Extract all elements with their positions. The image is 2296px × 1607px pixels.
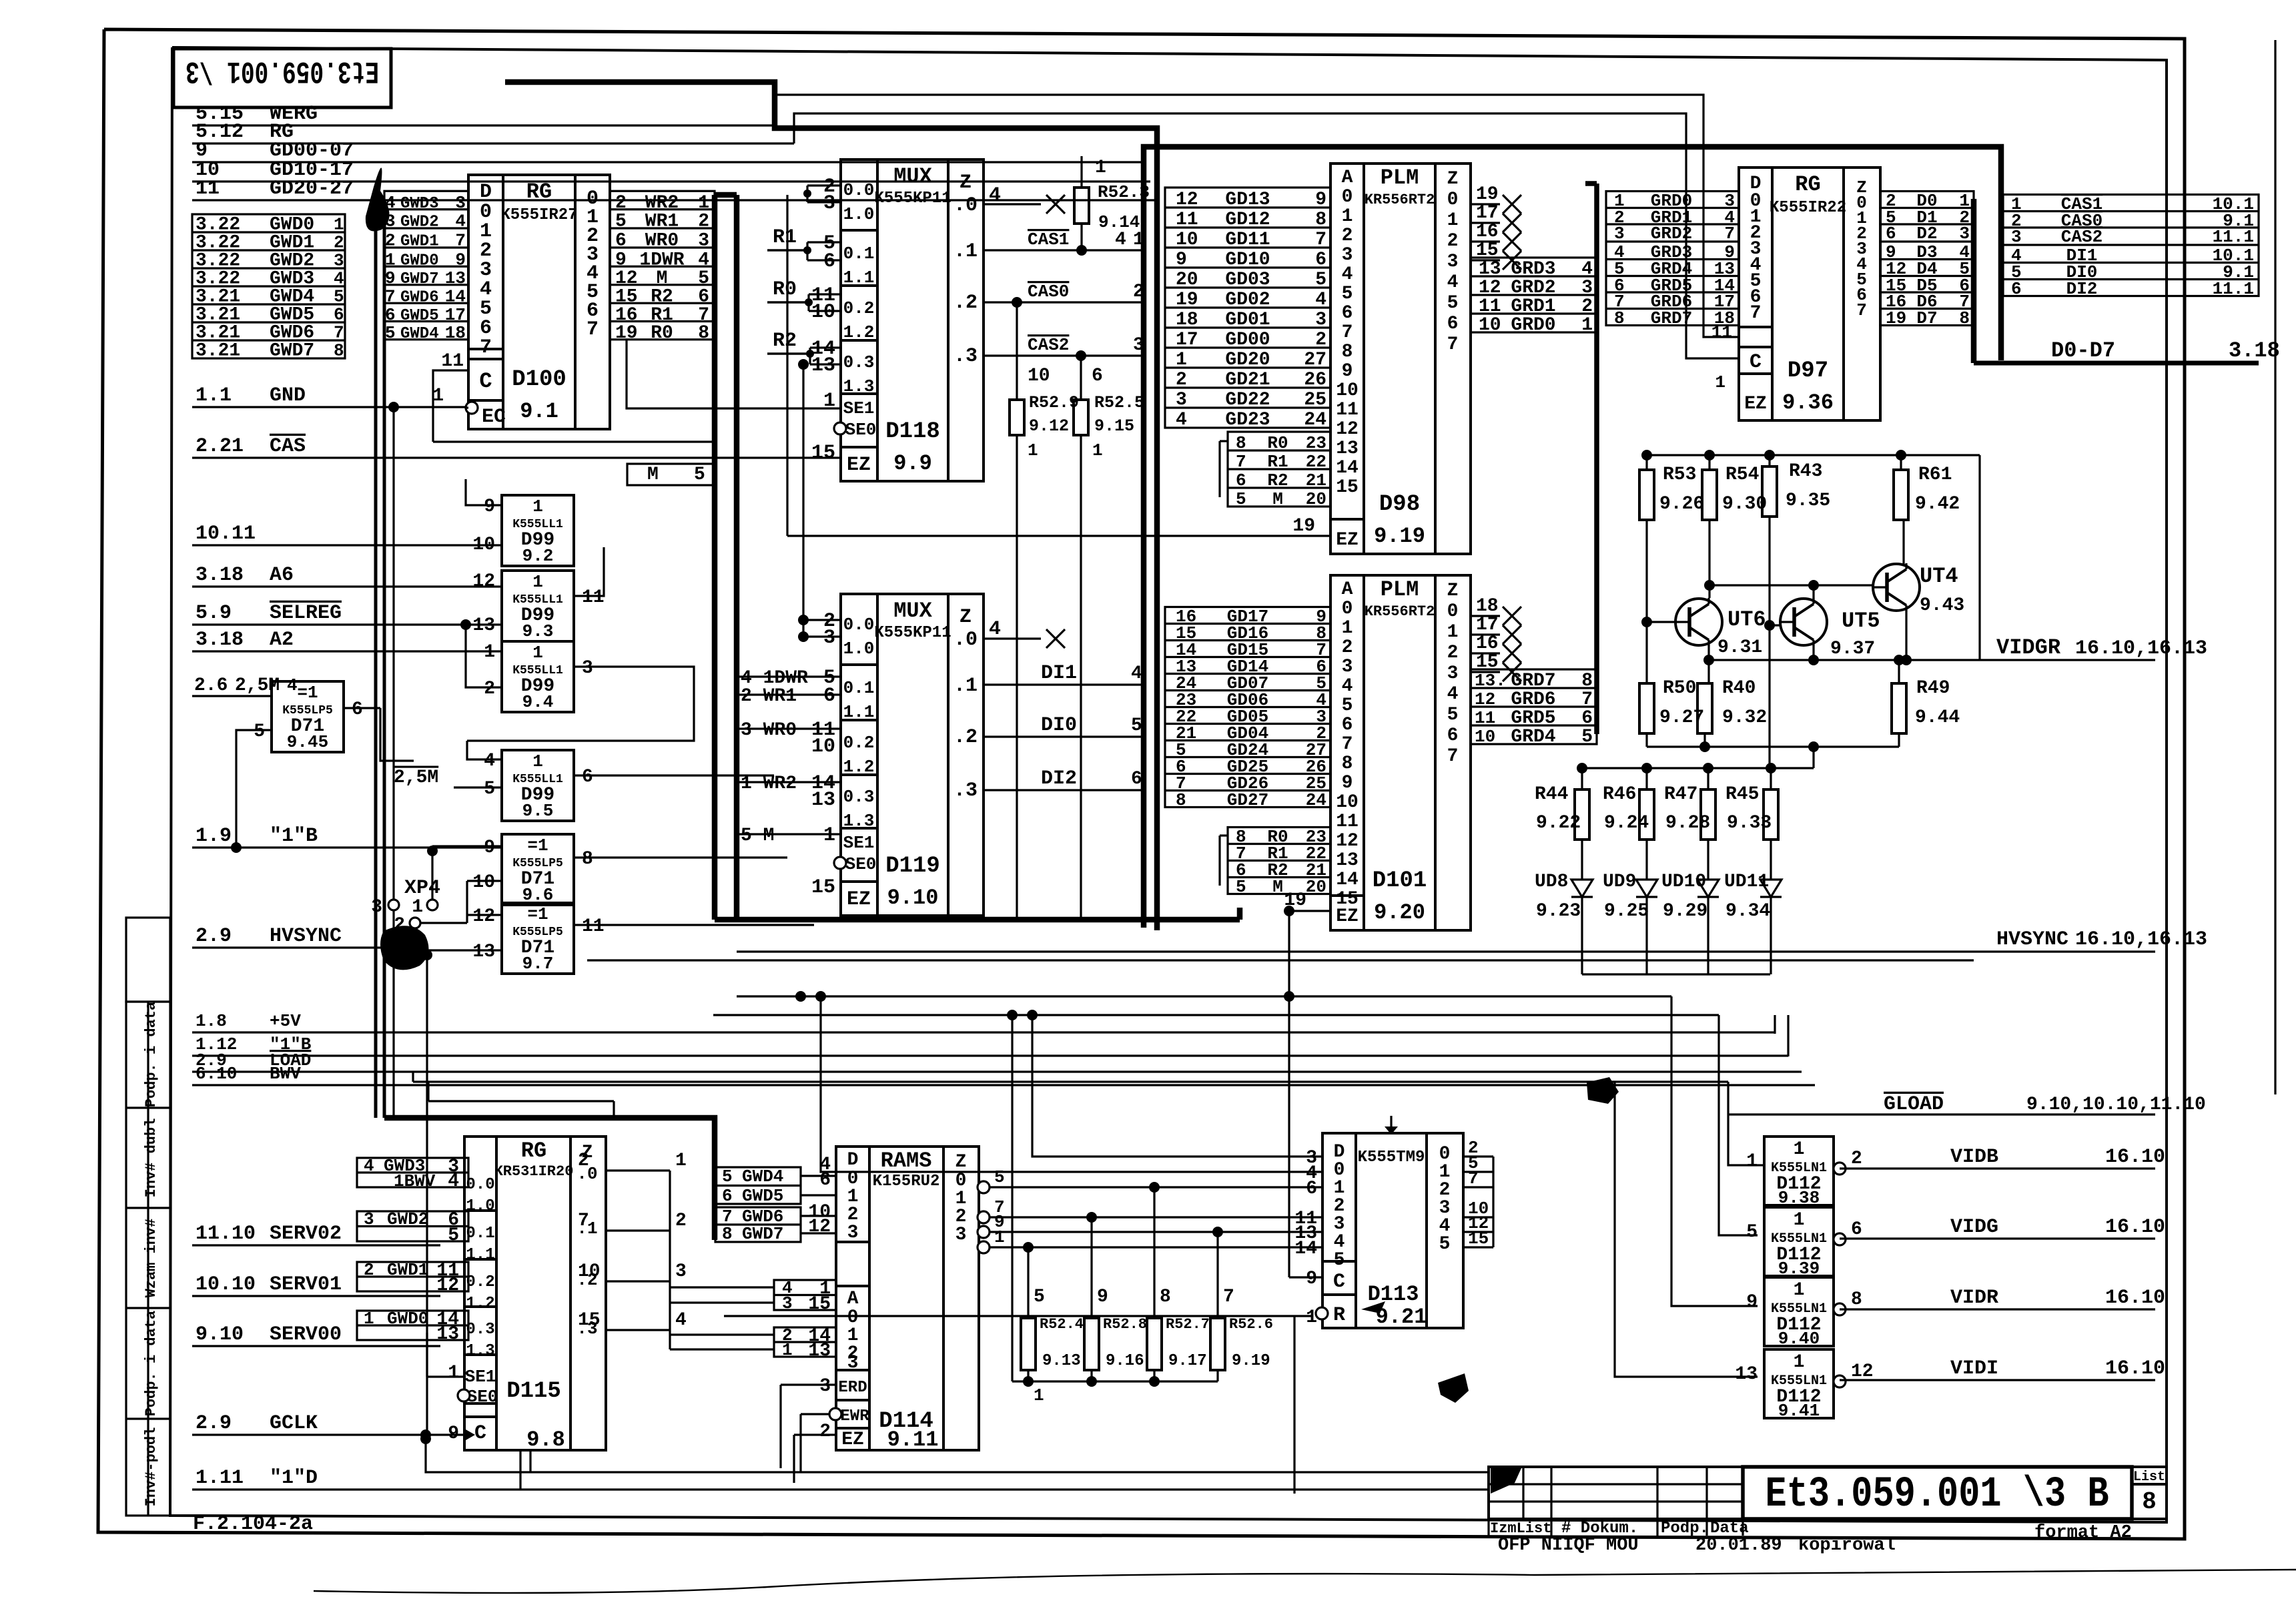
svg-text:5: 5: [1439, 1234, 1451, 1255]
svg-text:UT4: UT4: [1920, 564, 1958, 589]
svg-text:K555LP5: K555LP5: [282, 704, 333, 717]
svg-text:PLM: PLM: [1381, 166, 1419, 190]
svg-text:2: 2: [1851, 1149, 1862, 1169]
svg-text:GLOAD: GLOAD: [1884, 1093, 1944, 1116]
svg-text:GD22: GD22: [1225, 390, 1270, 410]
svg-text:8: 8: [1342, 753, 1353, 774]
svg-text:13.: 13.: [1475, 671, 1506, 691]
svg-text:10: 10: [1336, 792, 1359, 813]
svg-text:8: 8: [722, 1224, 733, 1244]
svg-text:D0-D7: D0-D7: [2051, 338, 2115, 363]
svg-text:EZ: EZ: [1336, 530, 1359, 551]
svg-text:UT5: UT5: [1842, 609, 1880, 633]
svg-text:9.24: 9.24: [1604, 813, 1649, 834]
svg-text:7: 7: [1468, 1169, 1479, 1189]
svg-text:.2: .2: [953, 292, 978, 314]
svg-text:R52.8: R52.8: [1103, 1316, 1147, 1333]
svg-text:3: 3: [582, 658, 593, 679]
svg-text:7: 7: [1447, 746, 1459, 767]
svg-text:6: 6: [823, 250, 835, 273]
svg-text:GRD4: GRD4: [1511, 727, 1555, 747]
svg-text:17: 17: [445, 305, 466, 325]
svg-text:9.35: 9.35: [1786, 491, 1830, 511]
svg-text:3.18: 3.18: [2229, 338, 2280, 363]
svg-text:12: 12: [1176, 190, 1198, 210]
svg-text:kopirowal: kopirowal: [1798, 1536, 1896, 1556]
svg-text:5: 5: [385, 323, 396, 343]
svg-text:R52.6: R52.6: [1229, 1316, 1273, 1333]
svg-text:3: 3: [1959, 224, 1970, 244]
svg-text:8: 8: [582, 849, 593, 870]
svg-text:R45: R45: [1726, 784, 1759, 805]
svg-text:1: 1: [698, 193, 709, 214]
svg-text:12: 12: [1851, 1361, 1874, 1382]
svg-text:Podp. i data: Podp. i data: [143, 1311, 159, 1416]
svg-text:WR1: WR1: [645, 212, 679, 232]
svg-text:9.12: 9.12: [1029, 416, 1069, 436]
svg-text:11: 11: [1336, 400, 1359, 420]
svg-text:RG: RG: [1795, 172, 1820, 197]
svg-text:3: 3: [371, 897, 382, 918]
svg-text:2: 2: [1176, 370, 1187, 390]
svg-text:9.31: 9.31: [1717, 637, 1762, 658]
svg-text:16.10: 16.10: [2105, 1146, 2165, 1169]
svg-text:GD01: GD01: [1225, 310, 1270, 330]
svg-text:6: 6: [1447, 725, 1459, 746]
svg-text:GWD4: GWD4: [400, 325, 439, 343]
svg-text:GND: GND: [270, 384, 306, 407]
svg-text:GRD2: GRD2: [1651, 224, 1692, 244]
svg-text:3: 3: [698, 231, 709, 252]
svg-text:7: 7: [455, 231, 466, 251]
svg-text:13: 13: [472, 615, 495, 636]
svg-text:16: 16: [1476, 633, 1499, 654]
svg-text:=1: =1: [527, 836, 548, 856]
svg-text:"1"D: "1"D: [270, 1467, 318, 1490]
svg-text:1: 1: [1447, 622, 1459, 643]
svg-text:1: 1: [1034, 1385, 1044, 1405]
svg-text:GD12: GD12: [1225, 210, 1270, 230]
svg-text:3: 3: [364, 1209, 374, 1229]
svg-text:13: 13: [811, 789, 835, 812]
svg-text:21: 21: [1306, 470, 1326, 491]
svg-text:1: 1: [1176, 350, 1187, 370]
svg-text:10: 10: [472, 872, 495, 893]
svg-text:9.37: 9.37: [1830, 639, 1875, 659]
svg-text:9: 9: [1342, 773, 1353, 793]
svg-text:GD23: GD23: [1225, 410, 1270, 430]
svg-text:3: 3: [1176, 390, 1187, 410]
svg-text:GD11: GD11: [1225, 230, 1270, 250]
svg-text:2.9: 2.9: [196, 925, 232, 948]
svg-text:9.42: 9.42: [1915, 494, 1960, 515]
svg-text:1: 1: [412, 897, 423, 918]
svg-text:7: 7: [1342, 734, 1353, 755]
svg-text:3: 3: [334, 251, 344, 271]
svg-text:0.0: 0.0: [843, 615, 875, 635]
svg-text:5: 5: [694, 464, 705, 485]
svg-text:SE1: SE1: [843, 398, 875, 418]
svg-text:5: 5: [1236, 489, 1246, 509]
svg-text:A: A: [847, 1289, 859, 1309]
svg-text:15: 15: [1336, 477, 1359, 498]
svg-text:4: 4: [1131, 663, 1142, 684]
svg-text:K555TM9: K555TM9: [1358, 1149, 1425, 1167]
svg-text:15: 15: [811, 876, 835, 899]
svg-text:6: 6: [1315, 250, 1326, 270]
svg-text:16.10,16.13: 16.10,16.13: [2075, 637, 2207, 660]
svg-text:0: 0: [1342, 187, 1353, 208]
svg-text:12: 12: [1475, 689, 1495, 709]
svg-text:GRD6: GRD6: [1511, 689, 1555, 710]
svg-text:2: 2: [1342, 226, 1353, 246]
svg-text:9.28: 9.28: [1665, 813, 1710, 834]
svg-text:12: 12: [472, 906, 495, 927]
svg-text:12: 12: [472, 571, 495, 592]
svg-text:SE1: SE1: [843, 833, 875, 853]
svg-text:1: 1: [364, 1309, 374, 1329]
svg-text:1: 1: [823, 824, 835, 847]
svg-text:1: 1: [1447, 210, 1459, 231]
svg-text:5: 5: [1315, 270, 1326, 290]
svg-text:1.3: 1.3: [466, 1342, 494, 1360]
svg-text:1.1: 1.1: [466, 1246, 494, 1264]
svg-text:5.9: 5.9: [196, 602, 232, 625]
svg-text:CAS: CAS: [270, 435, 306, 458]
svg-text:4: 4: [989, 618, 1001, 641]
svg-text:MUX: MUX: [893, 164, 932, 189]
svg-text:15: 15: [811, 442, 835, 464]
svg-text:7: 7: [480, 336, 492, 359]
svg-text:WR2: WR2: [645, 193, 679, 214]
svg-text:R52.7: R52.7: [1166, 1316, 1210, 1333]
svg-text:5: 5: [448, 1225, 459, 1246]
svg-text:UD11: UD11: [1724, 872, 1769, 892]
svg-text:4: 4: [455, 212, 466, 232]
svg-text:3: 3: [782, 1293, 793, 1313]
svg-text:5: 5: [1746, 1222, 1758, 1243]
svg-text:9.3: 9.3: [522, 621, 554, 641]
svg-text:8: 8: [1581, 671, 1593, 691]
svg-text:1: 1: [532, 497, 543, 517]
svg-text:R2: R2: [773, 330, 797, 352]
svg-text:RG: RG: [521, 1139, 546, 1163]
svg-text:5: 5: [1131, 715, 1142, 736]
svg-text:10.11: 10.11: [196, 523, 256, 545]
svg-text:8: 8: [2142, 1488, 2157, 1516]
svg-text:12: 12: [1479, 278, 1501, 298]
svg-text:9.9: 9.9: [893, 451, 932, 476]
svg-text:OFP NIIQF MOU: OFP NIIQF MOU: [1498, 1536, 1639, 1556]
svg-text:9.17: 9.17: [1168, 1352, 1207, 1370]
svg-text:4: 4: [1447, 272, 1459, 293]
svg-text:9: 9: [455, 250, 466, 270]
svg-text:10: 10: [1176, 230, 1198, 250]
svg-text:5: 5: [1342, 284, 1353, 304]
svg-text:9.2: 9.2: [522, 546, 554, 566]
svg-text:2: 2: [578, 1151, 589, 1171]
svg-text:6: 6: [1851, 1219, 1862, 1240]
svg-text:RAMS: RAMS: [881, 1149, 932, 1173]
svg-text:11.1: 11.1: [2213, 227, 2254, 247]
svg-text:4: 4: [1447, 684, 1459, 705]
svg-text:SE1: SE1: [465, 1367, 496, 1387]
svg-text:VIDG: VIDG: [1950, 1216, 1998, 1239]
svg-text:9.21: 9.21: [1376, 1305, 1427, 1329]
svg-text:.0: .0: [953, 629, 978, 651]
svg-text:1.2: 1.2: [466, 1295, 494, 1313]
svg-text:5: 5: [1447, 705, 1459, 725]
svg-text:6: 6: [352, 699, 363, 720]
svg-text:GWD5: GWD5: [400, 307, 439, 325]
svg-text:7: 7: [334, 323, 344, 343]
svg-text:6: 6: [1447, 314, 1459, 334]
svg-text:.1: .1: [953, 675, 978, 697]
svg-text:1: 1: [1342, 206, 1353, 227]
svg-text:5: 5: [1342, 695, 1353, 716]
svg-text:1: 1: [448, 1363, 459, 1383]
svg-text:27: 27: [1304, 350, 1326, 370]
svg-text:R1: R1: [1267, 452, 1288, 472]
svg-text:GD13: GD13: [1225, 190, 1270, 210]
svg-text:0.2: 0.2: [466, 1273, 494, 1291]
svg-text:8: 8: [1342, 342, 1353, 362]
svg-text:3: 3: [823, 192, 835, 215]
svg-text:6: 6: [1342, 303, 1353, 324]
svg-text:9.29: 9.29: [1663, 901, 1707, 922]
svg-text:K555IR22: K555IR22: [1770, 199, 1846, 217]
svg-text:3: 3: [1447, 663, 1459, 684]
svg-text:8: 8: [1315, 210, 1326, 230]
svg-text:2.21: 2.21: [196, 435, 244, 458]
svg-text:.0: .0: [953, 194, 978, 217]
svg-text:D98: D98: [1379, 492, 1420, 517]
svg-text:2.6: 2.6: [194, 675, 228, 696]
svg-text:K555LP5: K555LP5: [512, 926, 563, 939]
svg-text:7: 7: [1342, 322, 1353, 343]
svg-text:1.11: 1.11: [196, 1467, 244, 1490]
svg-text:VIDGR: VIDGR: [1996, 635, 2061, 660]
svg-text:R54: R54: [1726, 464, 1759, 485]
svg-text:3: 3: [955, 1225, 967, 1245]
svg-text:GWD1: GWD1: [400, 233, 439, 251]
svg-text:0.1: 0.1: [466, 1225, 494, 1243]
svg-text:1.8: 1.8: [196, 1011, 227, 1031]
svg-text:13: 13: [1336, 438, 1359, 459]
svg-text:2: 2: [1342, 637, 1353, 658]
svg-text:8: 8: [698, 323, 709, 344]
svg-text:GRD1: GRD1: [1511, 296, 1555, 317]
svg-text:11: 11: [196, 178, 220, 200]
svg-text:5: 5: [1581, 727, 1593, 747]
svg-text:9: 9: [385, 268, 396, 288]
svg-text:6: 6: [1306, 1179, 1317, 1199]
svg-text:1: 1: [532, 751, 543, 771]
svg-text:R52.9: R52.9: [1029, 393, 1079, 412]
svg-text:5: 5: [334, 287, 344, 307]
svg-text:3.18: 3.18: [196, 564, 244, 587]
svg-text:9: 9: [1342, 361, 1353, 382]
svg-text:16.10: 16.10: [2105, 1216, 2165, 1239]
svg-text:3: 3: [385, 212, 396, 232]
svg-text:K555KP11: K555KP11: [874, 190, 951, 208]
svg-text:9.30: 9.30: [1722, 494, 1767, 515]
svg-text:9.16: 9.16: [1106, 1352, 1144, 1370]
svg-text:D119: D119: [885, 854, 940, 879]
svg-text:9.4: 9.4: [522, 692, 554, 712]
svg-text:Z: Z: [960, 606, 972, 629]
svg-text:12: 12: [1336, 419, 1359, 440]
svg-text:10: 10: [472, 535, 495, 555]
svg-text:15: 15: [808, 1294, 831, 1315]
svg-text:MUX: MUX: [893, 599, 932, 623]
svg-text:EZ: EZ: [847, 888, 871, 911]
svg-text:# Dokum.: # Dokum.: [1561, 1520, 1638, 1538]
svg-text:A6: A6: [270, 564, 294, 587]
svg-text:10: 10: [811, 735, 835, 758]
svg-text:20: 20: [1306, 877, 1326, 897]
svg-text:2.9: 2.9: [196, 1412, 232, 1435]
svg-text:EZ: EZ: [1744, 394, 1767, 414]
svg-text:8: 8: [1614, 308, 1625, 328]
svg-text:R61: R61: [1918, 464, 1952, 485]
svg-text:0.0: 0.0: [466, 1176, 494, 1194]
svg-text:2: 2: [484, 679, 495, 699]
svg-text:17: 17: [1476, 615, 1499, 635]
svg-text:1: 1: [1746, 1151, 1758, 1172]
svg-text:C: C: [1333, 1271, 1345, 1293]
svg-text:9.40: 9.40: [1778, 1329, 1820, 1349]
svg-text:9: 9: [484, 838, 495, 858]
svg-text:EZ: EZ: [841, 1429, 864, 1450]
svg-text:format A2: format A2: [2034, 1523, 2132, 1543]
svg-text:SERV02: SERV02: [270, 1223, 342, 1245]
svg-text:SE0: SE0: [845, 854, 877, 874]
svg-text:18: 18: [1476, 596, 1499, 617]
svg-text:4: 4: [1115, 230, 1126, 250]
svg-text:Inv# dubl: Inv# dubl: [143, 1118, 159, 1198]
svg-text:1: 1: [1581, 315, 1593, 336]
svg-text:11: 11: [1479, 296, 1501, 317]
svg-text:13: 13: [1336, 850, 1359, 871]
svg-text:6: 6: [615, 231, 627, 252]
svg-text:13: 13: [811, 354, 835, 377]
svg-text:4: 4: [484, 751, 495, 771]
svg-text:1: 1: [385, 250, 396, 270]
svg-text:9: 9: [448, 1423, 459, 1444]
svg-text:6: 6: [385, 305, 396, 325]
svg-text:13: 13: [472, 942, 495, 962]
svg-text:12: 12: [615, 268, 638, 289]
svg-text:1.1: 1.1: [196, 384, 232, 407]
svg-text:GWD5: GWD5: [742, 1186, 783, 1206]
svg-text:KR556RT2: KR556RT2: [1365, 603, 1435, 620]
svg-text:.3: .3: [953, 345, 978, 368]
svg-text:+5V: +5V: [270, 1011, 301, 1031]
svg-text:GWD7: GWD7: [742, 1224, 783, 1244]
svg-text:8: 8: [334, 341, 344, 361]
svg-text:13: 13: [436, 1324, 459, 1345]
svg-text:9.19: 9.19: [1232, 1352, 1270, 1370]
svg-text:Et3.059.001 \3 B: Et3.059.001 \3 B: [1766, 1471, 2109, 1519]
svg-text:1: 1: [532, 572, 543, 592]
svg-text:2,5M: 2,5M: [235, 675, 280, 696]
svg-text:6: 6: [1886, 224, 1896, 244]
svg-text:F.2.104-2a: F.2.104-2a: [193, 1513, 313, 1536]
svg-text:4: 4: [675, 1310, 687, 1331]
svg-text:3: 3: [675, 1261, 687, 1282]
svg-text:9.20: 9.20: [1374, 900, 1425, 925]
svg-text:VIDB: VIDB: [1950, 1146, 1998, 1169]
svg-text:R0: R0: [651, 323, 673, 344]
svg-text:9: 9: [1097, 1287, 1108, 1307]
svg-text:7: 7: [1447, 334, 1459, 355]
svg-text:D100: D100: [512, 367, 566, 392]
svg-text:16: 16: [1476, 222, 1499, 242]
svg-text:6: 6: [1581, 708, 1593, 729]
svg-text:6: 6: [823, 685, 835, 707]
svg-text:9: 9: [484, 497, 495, 517]
svg-text:1.3: 1.3: [843, 376, 875, 396]
svg-text:M: M: [647, 464, 659, 485]
svg-text:9.7: 9.7: [522, 954, 554, 974]
svg-text:7: 7: [587, 318, 599, 341]
svg-text:1.1: 1.1: [843, 702, 875, 722]
svg-text:13: 13: [1479, 259, 1501, 280]
svg-text:D101: D101: [1373, 868, 1427, 894]
svg-text:DI1: DI1: [1041, 662, 1077, 685]
svg-text:1: 1: [1342, 618, 1353, 639]
svg-text:1: 1: [334, 215, 344, 235]
svg-text:EC: EC: [482, 406, 506, 428]
svg-text:0: 0: [1342, 599, 1353, 619]
svg-text:13: 13: [808, 1341, 831, 1361]
svg-text:"1"B: "1"B: [270, 825, 318, 848]
svg-text:1.3: 1.3: [843, 811, 875, 831]
svg-text:GRD5: GRD5: [1511, 708, 1555, 729]
svg-text:9.45: 9.45: [287, 732, 328, 752]
svg-text:1: 1: [994, 1227, 1005, 1247]
svg-text:GWD0: GWD0: [400, 252, 439, 270]
svg-text:KR531IR20: KR531IR20: [494, 1163, 574, 1180]
svg-text:R2: R2: [1267, 470, 1288, 491]
svg-text:GWD4: GWD4: [742, 1167, 783, 1187]
svg-text:K555LL1: K555LL1: [512, 664, 563, 677]
svg-text:19: 19: [1176, 290, 1198, 310]
svg-text:1: 1: [1794, 1139, 1805, 1160]
svg-text:19: 19: [1292, 516, 1315, 537]
svg-text:R49: R49: [1916, 678, 1950, 699]
svg-text:9.38: 9.38: [1778, 1188, 1820, 1208]
svg-text:VIDI: VIDI: [1950, 1357, 1998, 1380]
svg-text:3: 3: [819, 1376, 831, 1397]
svg-text:9.13: 9.13: [1042, 1352, 1081, 1370]
svg-text:CAS2: CAS2: [2061, 227, 2102, 247]
svg-text:1: 1: [1028, 440, 1038, 460]
svg-text:UT6: UT6: [1728, 607, 1766, 632]
svg-text:6.10: 6.10: [196, 1064, 237, 1084]
svg-text:9.8: 9.8: [526, 1427, 565, 1452]
svg-text:R53: R53: [1663, 464, 1696, 485]
svg-text:1: 1: [1715, 372, 1726, 392]
svg-text:RG: RG: [526, 180, 552, 204]
svg-text:IzmList: IzmList: [1490, 1520, 1551, 1537]
svg-text:R0: R0: [1267, 433, 1288, 453]
svg-text:CAS1: CAS1: [1028, 230, 1069, 250]
svg-text:3: 3: [1342, 245, 1353, 266]
svg-text:26: 26: [1304, 370, 1326, 390]
svg-text:0.2: 0.2: [843, 733, 875, 753]
